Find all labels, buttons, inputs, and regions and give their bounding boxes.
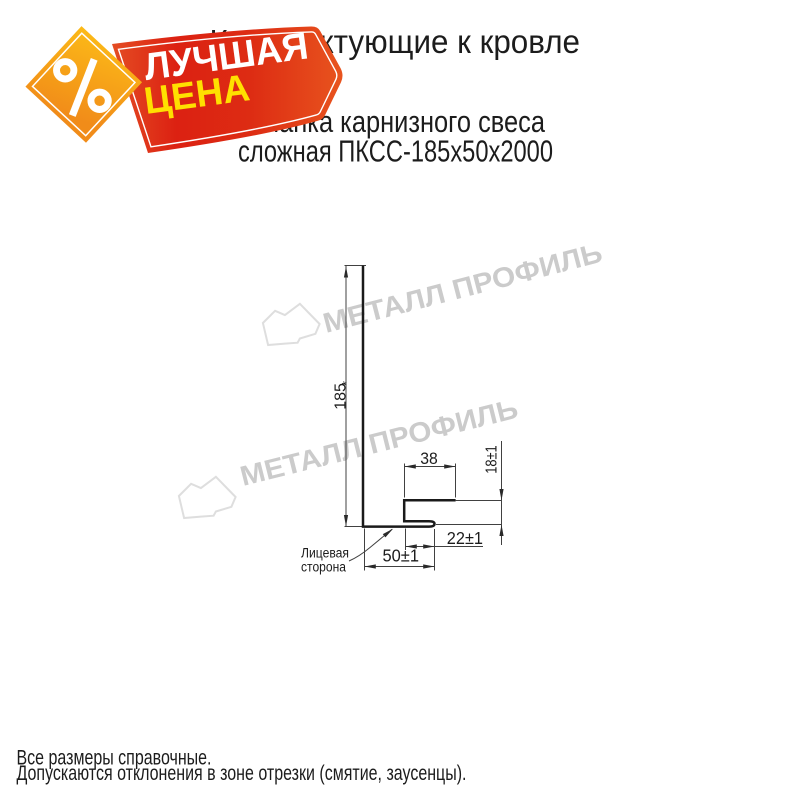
svg-text:Допускаются отклонения в зоне: Допускаются отклонения в зоне отрезки (с… <box>17 761 467 785</box>
svg-text:38: 38 <box>420 449 438 468</box>
svg-text:сторона: сторона <box>301 560 346 575</box>
svg-text:Лицевая: Лицевая <box>301 546 349 561</box>
svg-text:50±1: 50±1 <box>383 546 420 566</box>
svg-text:22±1: 22±1 <box>447 528 483 548</box>
svg-text:18±1: 18±1 <box>484 445 501 474</box>
svg-text:сложная ПКСС-185х50х2000: сложная ПКСС-185х50х2000 <box>238 133 553 168</box>
